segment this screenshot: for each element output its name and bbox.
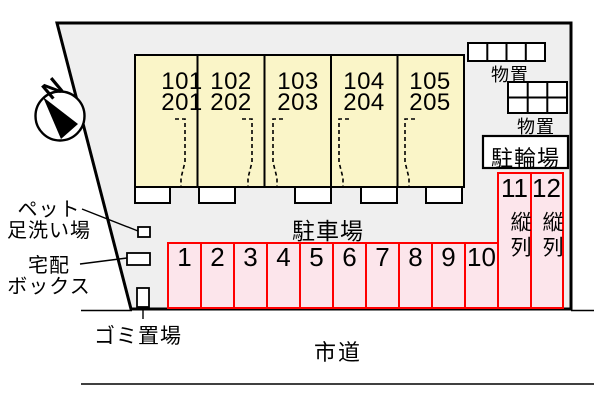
delivery-box-label-line1: 宅配 <box>1 256 97 277</box>
delivery-box-label: 宅配 ボックス <box>1 256 97 298</box>
parking-space-number: 4 <box>267 244 300 270</box>
tandem-space-label: 縦列 <box>504 211 534 261</box>
garbage-box <box>137 288 149 307</box>
storage-shed-2-label: 物置 <box>506 113 566 139</box>
tandem-space-label: 縦列 <box>536 211 566 261</box>
pet-wash-label-line2: 足洗い場 <box>1 221 97 242</box>
site-plan: N <box>0 0 600 400</box>
storage-shed-1 <box>468 43 545 61</box>
delivery-box-label-line2: ボックス <box>1 277 97 298</box>
tandem-space-number: 12 <box>530 175 563 201</box>
parking-space-number: 1 <box>168 244 201 270</box>
unit-number-lower: 202 <box>198 92 264 113</box>
parking-space-number: 10 <box>465 244 498 270</box>
pet-wash-box <box>138 227 150 237</box>
porch <box>361 187 397 203</box>
pet-wash-label: ペット 足洗い場 <box>1 200 97 242</box>
parking-space-number: 6 <box>333 244 366 270</box>
unit-number-lower: 205 <box>397 92 463 113</box>
parking-lot-label: 駐車場 <box>278 212 378 246</box>
tandem-space-number: 11 <box>498 175 531 201</box>
unit-number-lower: 204 <box>331 92 397 113</box>
parking-space-number: 8 <box>399 244 432 270</box>
city-road-label: 市道 <box>314 335 362 367</box>
unit-label-102-202: 102 202 <box>198 71 264 113</box>
unit-label-104-204: 104 204 <box>331 71 397 113</box>
porch <box>295 187 331 203</box>
storage-shed-1-label: 物置 <box>480 61 540 87</box>
parking-space-number: 9 <box>432 244 465 270</box>
parking-space-number: 3 <box>234 244 267 270</box>
porch <box>135 187 170 203</box>
porch <box>199 187 235 203</box>
parking-space-number: 2 <box>201 244 234 270</box>
bicycle-parking-label: 駐輪場 <box>483 141 568 173</box>
unit-label-103-203: 103 203 <box>265 71 331 113</box>
pet-wash-label-line1: ペット <box>1 200 97 221</box>
unit-number-lower: 203 <box>265 92 331 113</box>
unit-label-105-205: 105 205 <box>397 71 463 113</box>
parking-space-number: 5 <box>300 244 333 270</box>
parking-space-number: 7 <box>366 244 399 270</box>
delivery-box <box>127 253 150 265</box>
garbage-area-label: ゴミ置場 <box>94 320 182 350</box>
porch <box>426 187 462 203</box>
